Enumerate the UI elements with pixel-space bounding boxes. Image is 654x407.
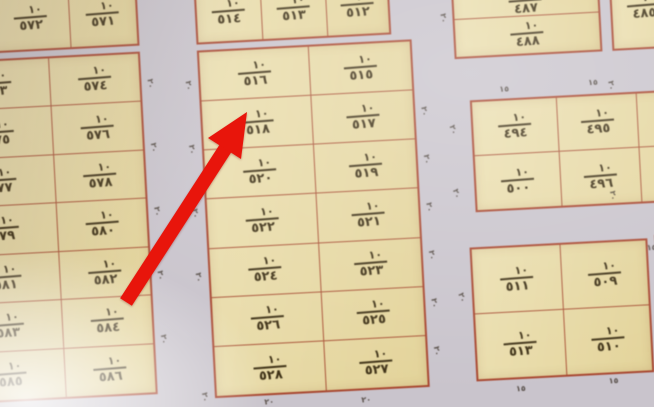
plot-cell-519: ١٠٥١٩ xyxy=(314,140,417,194)
fraction-denominator: ٥٢٦ xyxy=(256,318,281,335)
fraction-denominator: ٥٠٩ xyxy=(593,273,618,290)
fraction-denominator: ٥٧٢ xyxy=(19,17,44,34)
map-paper: ١٠ ٥٧٢ ١٠ ٥٧١ ١٠٥٧٣ ١٠٥٧٤ xyxy=(0,0,654,407)
plot-cell-573: ١٠٥٧٣ xyxy=(0,58,52,112)
block-middle: ١٠٥١٦ ١٠٥١٥ ١٠٥١٨ ١٠٥١٧ ١٠٥٢٠ ١٠٥١٩ ١٠٥٢… xyxy=(197,39,430,398)
fraction-denominator: ٥١٣ xyxy=(509,343,534,360)
plot-cell-cut xyxy=(640,144,654,202)
fraction-denominator: ٤٨٨ xyxy=(516,33,541,50)
plot-cell-572: ١٠ ٥٧٢ xyxy=(0,0,71,51)
fraction-denominator: ٥٢٣ xyxy=(359,263,384,280)
plot-cell-580: ١٠٥٨٠ xyxy=(57,199,148,252)
street-dimension-label: ٢٠ xyxy=(448,124,459,136)
plot-cell-513: ١٠٥١٣ xyxy=(260,0,328,39)
plot-cell-512: ١٠٥١٢ xyxy=(325,0,389,36)
plot-cell-509: ١٠٥٠٩ xyxy=(561,240,649,309)
street-dimension-label: ٢٠ xyxy=(456,292,467,304)
fraction-denominator: ٥٠٠ xyxy=(506,180,531,197)
fraction-denominator: ٥٧٥ xyxy=(0,132,10,149)
street-dimension-label: ٢٠ xyxy=(438,13,448,24)
street-dimension-label: ٢٠ xyxy=(194,272,204,283)
fraction-denominator: ٥١٤ xyxy=(217,10,242,27)
street-dimension-label: ٢٠ xyxy=(159,334,169,345)
fraction-denominator: ٥٢٠ xyxy=(248,170,273,187)
plot-cell-571: ١٠ ٥٧١ xyxy=(68,0,137,47)
street-dimension-label: ٢٠ xyxy=(184,80,194,91)
plot-cell-578: ١٠٥٧٨ xyxy=(54,150,145,203)
plot-cell-517: ١٠٥١٧ xyxy=(311,91,414,145)
block-far-top-right: ١٠٤٨٥ xyxy=(608,0,654,51)
plot-cell-496: ١٠٤٩٦ xyxy=(560,148,643,206)
plot-cell-cut xyxy=(637,90,654,148)
fraction-denominator: ٥٢٥ xyxy=(361,312,386,329)
plot-cell-527: ١٠٥٢٧ xyxy=(324,336,427,390)
plot-cell-523: ١٠٥٢٣ xyxy=(319,238,422,292)
plot-cell-579: ١٠٥٧٩ xyxy=(0,203,59,257)
street-dimension-label: ٢٠ xyxy=(149,142,159,153)
street-dimension-label: ٢٠ xyxy=(427,250,437,261)
plot-cell-518-arrow-target: ١٠٥١٨ xyxy=(202,96,314,151)
cadastral-map-photo: ١٠ ٥٧٢ ١٠ ٥٧١ ١٠٥٧٣ ١٠٥٧٤ xyxy=(0,0,654,407)
plot-cell-586: ١٠٥٨٦ xyxy=(64,344,155,397)
fraction-denominator: ٥٨٣ xyxy=(0,325,21,342)
street-dimension-label: ٢٠ xyxy=(429,298,439,309)
fraction-denominator: ٥٨٤ xyxy=(95,320,120,337)
fraction-denominator: ٥٨١ xyxy=(0,277,18,294)
fraction-denominator: ٥٧١ xyxy=(91,13,116,30)
street-dimension-label: ٢٠ xyxy=(424,202,434,213)
plot-cell-510: ١٠٥١٠ xyxy=(564,305,652,374)
street-dimension-label: ٢٠ xyxy=(606,80,616,91)
street-dimension-label: ١٥ xyxy=(588,78,598,87)
plot-cell-524: ١٠٥٢٤ xyxy=(209,243,321,298)
fraction-denominator: ٥٢٨ xyxy=(258,367,283,384)
plot-cell-583: ١٠٥٨٣ xyxy=(0,300,64,354)
street-dimension-label: ٢٠ xyxy=(156,270,166,281)
plot-cell-500: ١٠٥٠٠ xyxy=(475,152,563,210)
plot-cell-494: ١٠٤٩٤ xyxy=(472,98,560,156)
street-dimension-label: ٢٠ xyxy=(152,206,162,217)
plot-cell-584: ١٠٥٨٤ xyxy=(62,295,153,348)
street-dimension-label: ٢٠ xyxy=(145,78,155,89)
street-dimension-label: ٢٠ xyxy=(190,208,200,219)
fraction-denominator: ٥١٧ xyxy=(351,116,376,133)
plot-cell-495: ١٠٤٩٥ xyxy=(557,94,640,152)
fraction-denominator: ٥١٠ xyxy=(596,339,621,356)
street-dimension-label: ١٥ xyxy=(516,384,526,393)
fraction-denominator: ٥١١ xyxy=(505,278,530,295)
fraction-denominator: ٤٩٤ xyxy=(503,125,528,142)
fraction-denominator: ٤٩٦ xyxy=(589,175,614,192)
plot-cell-582: ١٠٥٨٢ xyxy=(59,247,150,300)
street-dimension-label: ٢٠ xyxy=(264,397,274,406)
plot-cell-515: ١٠٥١٥ xyxy=(309,41,412,95)
fraction-denominator: ٥٨٢ xyxy=(93,272,118,289)
plot-cell-521: ١٠٥٢١ xyxy=(317,189,420,243)
plot-cell-514: ١٠٥١٤ xyxy=(195,0,263,43)
block-top-right: ١٠٤٨٧ ١٠٤٨٨ xyxy=(450,0,602,59)
fraction-denominator: ٥٢٤ xyxy=(253,269,278,286)
fraction-denominator: ٥٧٨ xyxy=(88,175,113,192)
street-dimension-label: ٢٠ xyxy=(361,395,371,404)
street-dimension-label: ٢٠ xyxy=(432,346,442,357)
fraction-denominator: ٥٧٤ xyxy=(83,78,108,95)
fraction-denominator: ٥٢٧ xyxy=(364,362,389,379)
plot-cell-576: ١٠٥٧٦ xyxy=(52,102,143,155)
street-dimension-label: ٢٠ xyxy=(422,154,432,165)
block-left: ١٠٥٧٣ ١٠٥٧٤ ١٠٥٧٥ ١٠٥٧٦ ١٠٥٧٧ ١٠٥٧٨ ١٠٥٧… xyxy=(0,52,158,405)
plot-cell-522: ١٠٥٢٢ xyxy=(207,194,319,249)
fraction-denominator: ٥٧٧ xyxy=(0,180,13,197)
fraction-denominator: ٥٧٣ xyxy=(0,83,8,100)
street-dimension-label: ١٥ xyxy=(647,243,654,252)
block-right-bottom: ١٠٥١١ ١٠٥٠٩ ١٠٥١٣ ١٠٥١٠ xyxy=(470,238,654,381)
plot-cell-585: ١٠٥٨٥ xyxy=(0,348,67,402)
plot-cell-488: ١٠٤٨٨ xyxy=(455,13,601,57)
fraction-denominator: ٥٨٠ xyxy=(90,223,115,240)
plot-number-fraction: ١٠ ٥٧١ xyxy=(85,0,121,30)
plot-cell-516: ١٠٥١٦ xyxy=(199,47,311,102)
fraction-denominator: ٤٨٥ xyxy=(632,5,654,22)
street-dimension-label: ٢٠ xyxy=(451,188,462,200)
block-top-left: ١٠ ٥٧٢ ١٠ ٥٧١ xyxy=(0,0,140,55)
fraction-denominator: ٥٧٦ xyxy=(85,127,110,144)
street-dimension-label: ٢٠ xyxy=(608,190,618,201)
plot-cell-577: ١٠٥٧٧ xyxy=(0,155,57,209)
fraction-denominator: ٥١٣ xyxy=(282,7,307,24)
fraction-denominator: ٥١٢ xyxy=(345,4,370,21)
fraction-denominator: ٥١٨ xyxy=(245,121,270,138)
street-dimension-label: ١٥ xyxy=(608,376,618,385)
fraction-denominator: ٥٧٩ xyxy=(0,229,15,246)
fraction-denominator: ٥٢٢ xyxy=(250,219,275,236)
block-right-middle: ١٠٤٩٤ ١٠٤٩٥ ١٠٥٠٠ ١٠٤٩٦ xyxy=(470,88,654,213)
street-dimension-label: ٢٠ xyxy=(200,392,210,403)
fraction-denominator: ٥١٦ xyxy=(243,72,268,89)
fraction-denominator: ٥١٩ xyxy=(354,165,379,182)
plot-cell-520: ١٠٥٢٠ xyxy=(204,145,316,200)
fraction-denominator: ٥٨٥ xyxy=(0,374,23,391)
plot-cell-525: ١٠٥٢٥ xyxy=(322,287,425,341)
fraction-denominator: ٥٢١ xyxy=(356,214,381,231)
street-dimension-label: ٢٠ xyxy=(419,106,429,117)
street-dimension-label: ١٥ xyxy=(499,84,509,93)
street-dimension-label: ٢٠ xyxy=(187,144,197,155)
plot-number-fraction: ١٠ ٥٧٢ xyxy=(13,3,49,35)
plot-cell-513: ١٠٥١٣ xyxy=(475,310,567,380)
plot-cell-581: ١٠٥٨١ xyxy=(0,252,62,306)
plot-cell-526: ١٠٥٢٦ xyxy=(212,292,324,347)
plot-cell-575: ١٠٥٧٥ xyxy=(0,107,54,161)
fraction-denominator: ٤٨٧ xyxy=(514,0,539,17)
fraction-denominator: ٤٩٥ xyxy=(586,121,611,138)
plot-cell-574: ١٠٥٧٤ xyxy=(49,54,140,107)
plot-cell-485: ١٠٤٨٥ xyxy=(610,0,654,49)
plot-cell-528: ١٠٥٢٨ xyxy=(214,341,326,396)
fraction-denominator: ٥١٥ xyxy=(349,67,374,84)
block-middle-top: ١٠٥١٤ ١٠٥١٣ ١٠٥١٢ xyxy=(193,0,391,45)
fraction-denominator: ٥٨٦ xyxy=(98,369,123,386)
plot-cell-511: ١٠٥١١ xyxy=(472,245,564,315)
